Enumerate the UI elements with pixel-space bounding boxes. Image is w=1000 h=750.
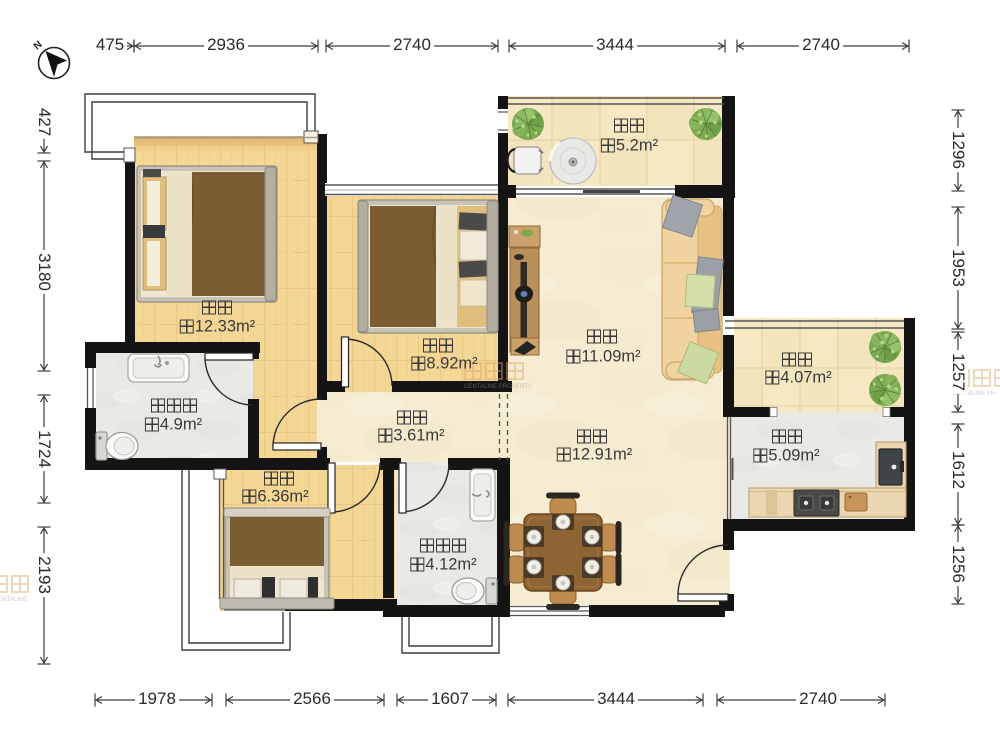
svg-text:CENTALINE PROPERTY: CENTALINE PROPERTY (464, 384, 532, 390)
svg-text:N: N (32, 39, 45, 52)
svg-text:CENTALINE: CENTALINE (0, 597, 27, 603)
